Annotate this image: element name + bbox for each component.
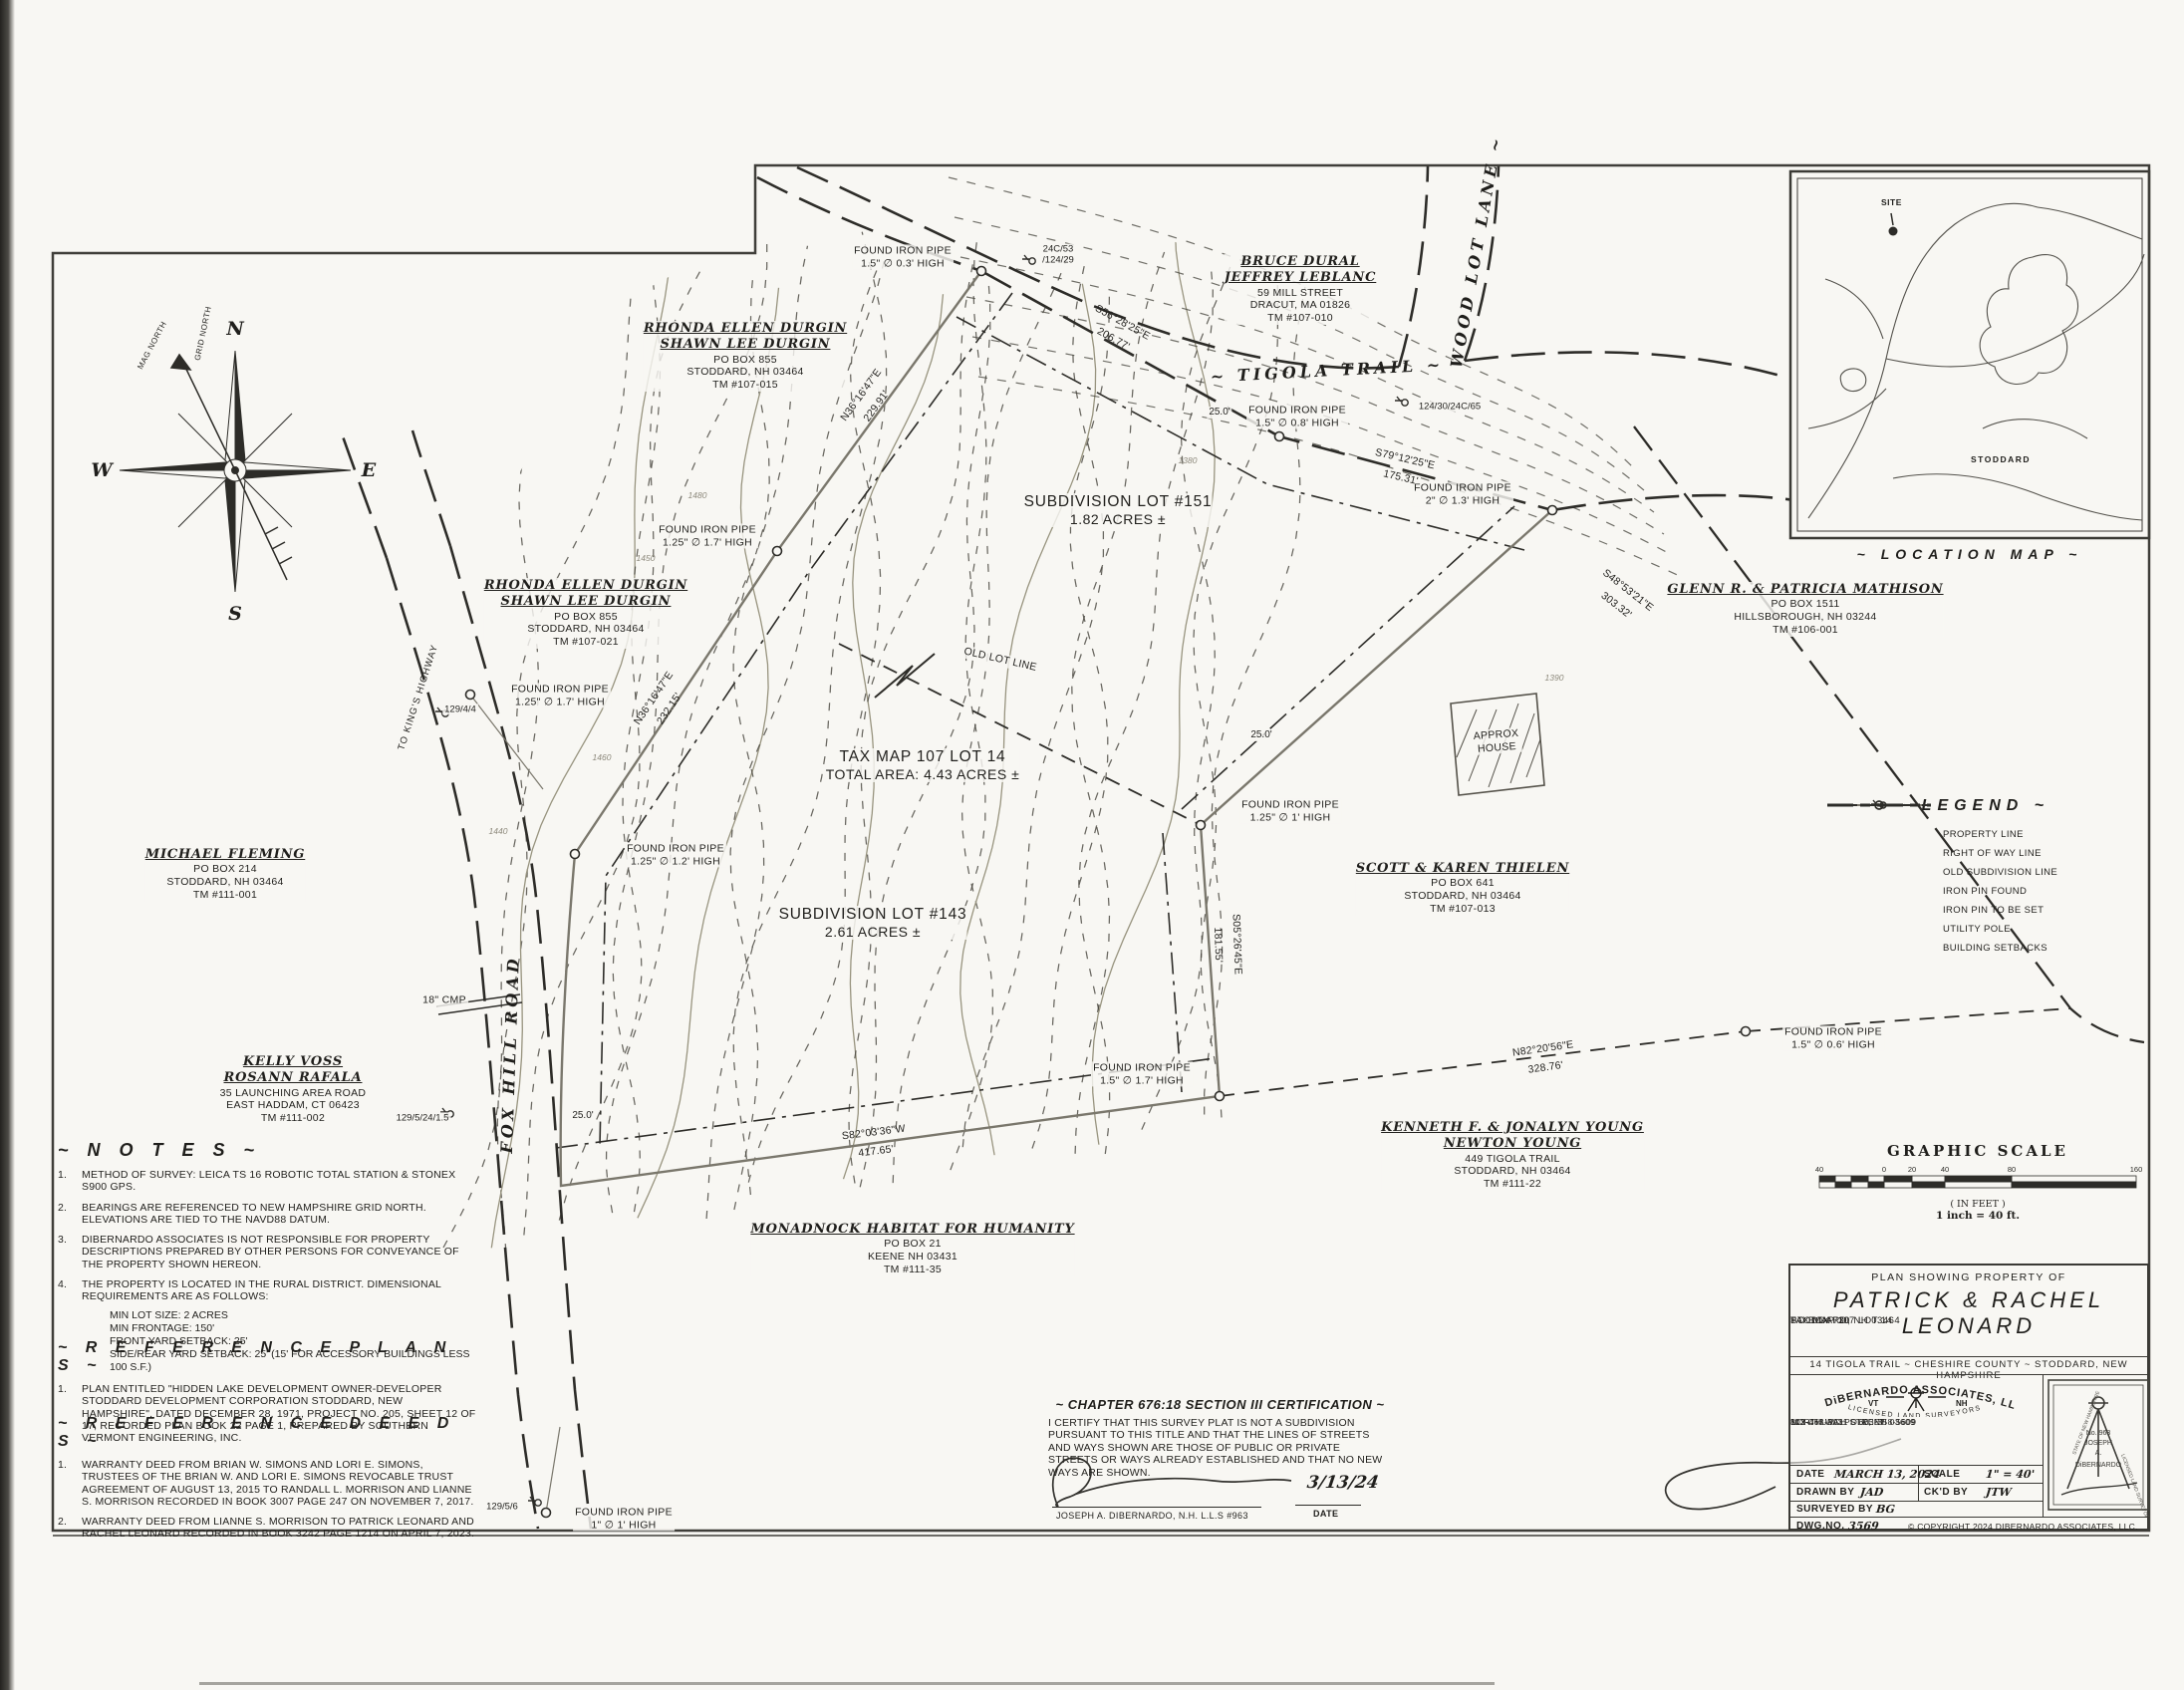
rect [1868,1176,1884,1182]
distance-text: 328.76' [1514,1057,1577,1078]
rect [2012,1182,2136,1188]
certification-block: ~ CHAPTER 676:18 SECTION III CERTIFICATI… [1048,1397,1392,1479]
owner-address-line: TAX MAP 107 LOT 14 [1790,1315,1892,1327]
abutter-address-line: 59 MILL STREET [1225,287,1377,300]
firm-logo: DiBERNARDO ASSOCIATES, LLC LICENSED LAND… [1790,1375,2043,1417]
abutter-address-line: TM #111-22 [1381,1178,1644,1191]
div [1790,1483,2043,1484]
bearing-distance-label: S48°53'21"E303.32' [1587,566,1658,631]
reference-deed-item-number: 2. [58,1516,73,1541]
contour-elevation-label: 1450 [637,553,656,563]
grid-north-label: GRID NORTH [193,305,213,361]
rect [1912,1176,1945,1182]
abutter-name: SHAWN LEE DURGIN [644,337,847,353]
reference-deed-item-text: WARRANTY DEED FROM LIANNE S. MORRISON TO… [82,1516,476,1541]
tigola-trail: ~ TIGOLA TRAIL ~ [1208,355,1446,387]
text: DiBERNARDO ASSOCIATES, LLC [1790,1375,2018,1412]
pole-id-1: 24C/53 /124/29 [1040,244,1076,267]
div [1790,1501,2043,1502]
abutter-name: ROSANN RAFALA [220,1070,367,1086]
abutter-address-line: TM #111-002 [220,1112,367,1125]
note-item-text: DIBERNARDO ASSOCIATES IS NOT RESPONSIBLE… [82,1234,476,1270]
abutter-block: RHONDA ELLEN DURGINSHAWN LEE DURGINPO BO… [484,578,687,649]
iron-pipe-label: FOUND IRON PIPE 1" ∅ 1' HIGH [573,1506,675,1531]
legend-items: PROPERTY LINERIGHT OF WAY LINEOLD SUBDIV… [1823,825,2122,958]
rect [1835,1182,1851,1188]
to-kings-highway: TO KING'S HIGHWAY [396,642,441,754]
abutter-name: SHAWN LEE DURGIN [484,594,687,610]
iron-pipe-label: FOUND IRON PIPE 1.5" ∅ 0.3' HIGH [852,244,954,269]
reference-deed-item: 2.WARRANTY DEED FROM LIANNE S. MORRISON … [58,1516,476,1541]
legend-item-label: PROPERTY LINE [1943,829,2024,840]
text: 160 [2130,1165,2142,1174]
scale-field-value: 1" = 40' [1985,1468,2035,1481]
pole-id-2: 124/30/24C/65 [1417,401,1483,412]
text: DiBERNARDO [2075,1462,2122,1469]
rect [1912,1182,1945,1188]
old-lot-line: OLD LOT LINE [960,645,1039,675]
abutter-address-line: TM #107-010 [1225,312,1377,325]
abutter-address-line: TM #111-001 [145,889,306,902]
rect [1884,1182,1912,1188]
graphic-scale-title: GRAPHIC SCALE [1808,1142,2147,1160]
div [1790,1517,2147,1518]
div [2043,1374,2044,1517]
note-item-number: 1. [58,1169,73,1194]
note-item: 2.BEARINGS ARE REFERENCED TO NEW HAMPSHI… [58,1202,476,1227]
abutter-name: MICHAEL FLEMING [145,847,306,863]
date-line [1295,1505,1361,1506]
copyright-text: © COPYRIGHT 2024 DIBERNARDO ASSOCIATES, … [1908,1522,2138,1532]
abutter-address-line: PO BOX 855 [484,611,687,624]
compass-east-label: E [362,459,376,481]
path [2061,1483,2137,1495]
checked-field-value: JTW [1985,1486,2012,1499]
legend-item-label: BUILDING SETBACKS [1943,943,2047,954]
rect [1835,1176,1851,1182]
pole-id-4: 129/5/24/1.5 [395,1112,451,1123]
abutter-address-line: TM #107-013 [1356,903,1569,916]
bearing-distance-label: S82°03'36"W417.65' [839,1122,910,1161]
text: 40 [1941,1165,1949,1174]
graphic-scale: GRAPHIC SCALE 400204080160 ( IN FEET ) 1… [1808,1142,2147,1222]
abutter-name: BRUCE DURAL [1225,254,1377,270]
rect [1945,1176,2012,1182]
checked-field-label: CK'D BY [1924,1487,1968,1498]
pole-id-5: 129/5/6 [484,1501,520,1512]
bearing-distance-label: S05°26'45"E181.55' [1211,912,1243,978]
dim-25-east: 25.0' [1248,729,1273,741]
abutter-address-line: KEENE NH 03431 [750,1251,1074,1264]
abutter-address-line: STODDARD, NH 03464 [484,623,687,636]
abutter-block: RHONDA ELLEN DURGINSHAWN LEE DURGINPO BO… [644,321,847,392]
abutter-address-line: 35 LAUNCHING AREA ROAD [220,1087,367,1100]
abutter-address-line: 449 TIGOLA TRAIL [1381,1153,1644,1166]
lot-area-label: SUBDIVISION LOT #1511.82 ACRES ± [1024,493,1213,527]
lot-acreage: 2.61 ACRES ± [779,924,967,940]
text: 0 [1882,1165,1886,1174]
drawn-field-label: DRAWN BY [1796,1487,1854,1498]
abutter-name: RHONDA ELLEN DURGIN [644,321,847,337]
rect [1851,1176,1868,1182]
lot-area-label: TAX MAP 107 LOT 14TOTAL AREA: 4.43 ACRES… [826,748,1020,782]
surveyed-field-value: BG [1875,1503,1895,1516]
site-label: SITE [1881,197,1902,207]
rect [1851,1182,1868,1188]
abutter-block: MONADNOCK HABITAT FOR HUMANITYPO BOX 21K… [750,1222,1074,1276]
abutter-name: GLENN R. & PATRICIA MATHISON [1667,582,1943,598]
rect [2012,1176,2136,1182]
abutter-name: KELLY VOSS [220,1054,367,1070]
div [1790,1465,2043,1466]
text: 20 [1908,1165,1916,1174]
certification-date-value: 3/13/24 [1306,1473,1380,1493]
abutter-name: MONADNOCK HABITAT FOR HUMANITY [750,1222,1074,1238]
dimensional-requirement-line: MIN LOT SIZE: 2 ACRES [110,1309,476,1322]
owner-name: PATRICK & RACHEL LEONARD [1790,1287,2147,1339]
reference-plans-title: ~ R E F E R E N C E P L A N S ~ [58,1339,476,1375]
location-map-title: ~ LOCATION MAP ~ [1857,546,2083,562]
distance-text: 181.55' [1211,915,1226,977]
title-block-heading: PLAN SHOWING PROPERTY OF [1790,1271,2147,1283]
approx-house: APPROX HOUSE [1471,727,1521,756]
bearing-distance-label: S56°28'25"E206.77' [1082,302,1154,361]
mag-north-label: MAG NORTH [136,320,168,371]
abutter-address-line: TM #111-35 [750,1264,1074,1276]
iron-pipe-label: FOUND IRON PIPE 1.5" ∅ 1.7' HIGH [1091,1061,1193,1086]
abutter-block: GLENN R. & PATRICIA MATHISONPO BOX 1511H… [1667,582,1943,637]
contour-elevation-label: 1480 [688,490,707,500]
legend-item-label: UTILITY POLE [1943,924,2011,935]
legend-item: RIGHT OF WAY LINE [1823,844,2122,863]
legend-item-label: OLD SUBDIVISION LINE [1943,867,2057,878]
note-item: 4.THE PROPERTY IS LOCATED IN THE RURAL D… [58,1278,476,1303]
scale-units: ( IN FEET ) [1808,1199,2147,1210]
contour-elevation-label: 1460 [593,752,612,762]
legend-item-label: IRON PIN FOUND [1943,886,2027,897]
bearing-distance-label: N82°20'56"E328.76' [1509,1038,1578,1078]
iron-pipe-label: FOUND IRON PIPE 1.25" ∅ 1' HIGH [1239,798,1341,823]
wood-lot-lane: WOOD LOT LANE ~ [1447,131,1507,371]
note-item-text: BEARINGS ARE REFERENCED TO NEW HAMPSHIRE… [82,1202,476,1227]
abutter-address-line: HILLSBOROUGH, NH 03244 [1667,611,1943,624]
abutter-name: JEFFREY LEBLANC [1225,270,1377,286]
legend-item-label: RIGHT OF WAY LINE [1943,848,2042,859]
dwg-field-value: 3569 [1847,1520,1879,1533]
legend-item: IRON PIN FOUND [1823,882,2122,901]
text: 40 [1815,1165,1823,1174]
abutter-address-line: EAST HADDAM, CT 06423 [220,1099,367,1112]
text: No. 963 [2086,1430,2111,1437]
rect [1868,1182,1884,1188]
abutter-address-line: TM #107-015 [644,379,847,392]
compass-south-label: S [228,603,242,625]
rect [1884,1176,1912,1182]
dim-25-top: 25.0' [1207,407,1231,419]
rect [1945,1182,2012,1188]
legend-item: PROPERTY LINE [1823,825,2122,844]
abutter-name: SCOTT & KAREN THIELEN [1356,861,1569,877]
note-item: 3.DIBERNARDO ASSOCIATES IS NOT RESPONSIB… [58,1234,476,1270]
abutter-address-line: STODDARD, NH 03464 [145,876,306,889]
text: A. [2095,1450,2102,1457]
drawn-field-value: JAD [1859,1486,1884,1499]
div [1790,1356,2147,1357]
legend-item: UTILITY POLE [1823,920,2122,939]
abutter-address-line: TM #107-021 [484,636,687,649]
iron-pipe-label: FOUND IRON PIPE 1.25" ∅ 1.7' HIGH [509,683,611,707]
contour-elevation-label: 1390 [1545,673,1564,683]
bearing-text: S05°26'45"E [1229,914,1244,976]
abutter-name: NEWTON YOUNG [1381,1136,1644,1152]
abutter-address-line: PO BOX 21 [750,1238,1074,1251]
date-label: DATE [1313,1509,1338,1519]
lot-acreage: TOTAL AREA: 4.43 ACRES ± [826,766,1020,782]
rect [1819,1182,1835,1188]
legend: ~ LEGEND ~ PROPERTY LINERIGHT OF WAY LIN… [1823,797,2122,958]
title-block: PLAN SHOWING PROPERTY OF PATRICK & RACHE… [1788,1264,2149,1531]
compass-north-label: N [226,318,243,340]
iron-pipe-label: FOUND IRON PIPE 1.25" ∅ 1.7' HIGH [657,523,758,548]
reference-deed-item: 1.WARRANTY DEED FROM BRIAN W. SIMONS AND… [58,1459,476,1508]
abutter-address-line: PO BOX 855 [644,354,847,367]
abutter-address-line: TM #106-001 [1667,624,1943,637]
cmp-culvert: 18" CMP [420,994,468,1007]
compass-west-label: W [91,459,112,481]
abutter-address-line: PO BOX 1511 [1667,598,1943,611]
contour-elevation-label: 1380 [1179,455,1198,465]
iron-pipe-label: FOUND IRON PIPE 1.5" ∅ 0.6' HIGH [1782,1025,1884,1050]
bearing-text: N82°20'56"E [1511,1038,1574,1059]
abutter-name: KENNETH F. & JONALYN YOUNG [1381,1120,1644,1136]
svg [1823,797,1935,813]
abutter-block: MICHAEL FLEMINGPO BOX 214STODDARD, NH 03… [145,847,306,902]
firm-address-line: 802-463-3031 ~ 603-358-5609 [1790,1417,1916,1428]
dimensional-requirement-line: MIN FRONTAGE: 150' [110,1322,476,1335]
town-label: STODDARD [1971,454,2031,464]
lot-title: SUBDIVISION LOT #143 [779,906,967,924]
rect [1819,1176,1835,1182]
legend-item: BUILDING SETBACKS [1823,939,2122,958]
iron-pipe-label: FOUND IRON PIPE 1.25" ∅ 1.2' HIGH [625,842,726,867]
scale-field-label: SCALE [1924,1469,1960,1480]
scale-bar-graphic: 400204080160 [1813,1162,2142,1196]
notes-title: ~ N O T E S ~ [58,1140,476,1161]
abutter-address-line: STODDARD, NH 03464 [1381,1165,1644,1178]
dim-25-west: 25.0' [570,1110,595,1122]
abutter-block: BRUCE DURALJEFFREY LEBLANC59 MILL STREET… [1225,254,1377,325]
reference-deeds-title: ~ R E F E R E N C E D E E D S ~ [58,1415,476,1451]
survey-sheet: N S E W MAG NORTH GRID NORTH SITE STODDA… [0,0,2184,1690]
abutter-address-line: STODDARD, NH 03464 [644,366,847,379]
surveyed-field-label: SURVEYED BY [1796,1504,1873,1515]
lot-title: TAX MAP 107 LOT 14 [826,748,1020,766]
state-vt: VT [1868,1399,1878,1408]
surveyor-seal: STATE OF NEW HAMPSHIRE LICENSED LAND SUR… [2046,1377,2151,1517]
contour-elevation-label: 1440 [489,826,508,836]
certification-body: I CERTIFY THAT THIS SURVEY PLAT IS NOT A… [1048,1417,1392,1479]
abutter-block: SCOTT & KAREN THIELENPO BOX 641STODDARD,… [1356,861,1569,916]
surveyor-name: JOSEPH A. DIBERNARDO, N.H. L.L.S #963 [1056,1511,1248,1521]
text: 80 [2008,1165,2016,1174]
note-item-number: 3. [58,1234,73,1270]
scale-bar: 400204080160 [1808,1162,2147,1196]
note-item-text: METHOD OF SURVEY: LEICA TS 16 ROBOTIC TO… [82,1169,476,1194]
abutter-address-line: PO BOX 641 [1356,877,1569,890]
textpath: DiBERNARDO ASSOCIATES, LLC [1790,1375,2018,1412]
note-item-number: 4. [58,1278,73,1303]
bearing-distance-label: S79°12'25"E175.31' [1368,445,1439,490]
abutter-address-line: STODDARD, NH 03464 [1356,890,1569,903]
abutter-name: RHONDA ELLEN DURGIN [484,578,687,594]
reference-deed-item-text: WARRANTY DEED FROM BRIAN W. SIMONS AND L… [82,1459,476,1508]
reference-deed-item-number: 1. [58,1459,73,1508]
legend-item-label: IRON PIN TO BE SET [1943,905,2044,916]
state-nh: NH [1956,1399,1968,1408]
date-field-label: DATE [1796,1469,1824,1480]
note-item-number: 2. [58,1202,73,1227]
abutter-block: KELLY VOSSROSANN RAFALA35 LAUNCHING AREA… [220,1054,367,1125]
distance-text: 417.65' [844,1141,909,1161]
dwg-field-label: DWG.NO. [1796,1521,1845,1532]
legend-item: OLD SUBDIVISION LINE [1823,863,2122,882]
note-item-text: THE PROPERTY IS LOCATED IN THE RURAL DIS… [82,1278,476,1303]
text: JOSEPH [2084,1440,2112,1447]
abutter-address-line: DRACUT, MA 01826 [1225,299,1377,312]
lot-title: SUBDIVISION LOT #151 [1024,493,1213,511]
certification-title: ~ CHAPTER 676:18 SECTION III CERTIFICATI… [1048,1397,1392,1412]
bearing-distance-label: N36°16'47"E232.15' [631,668,693,739]
reference-deeds-section: ~ R E F E R E N C E D E E D S ~ 1.WARRAN… [58,1415,476,1549]
note-item: 1.METHOD OF SURVEY: LEICA TS 16 ROBOTIC … [58,1169,476,1194]
fox-hill-road: FOX HILL ROAD [497,953,523,1156]
bearing-text: S82°03'36"W [841,1123,906,1143]
legend-item: IRON PIN TO BE SET [1823,901,2122,920]
abutter-address-line: PO BOX 214 [145,863,306,876]
iron-pipe-label: FOUND IRON PIPE 1.5" ∅ 0.8' HIGH [1246,404,1348,428]
pole-id-3: 129/4/4 [442,704,478,714]
surveyor-signature-line [1052,1507,1261,1508]
abutter-block: KENNETH F. & JONALYN YOUNGNEWTON YOUNG44… [1381,1120,1644,1191]
lot-area-label: SUBDIVISION LOT #1432.61 ACRES ± [779,906,967,940]
scale-ratio: 1 inch = 40 ft. [1808,1210,2147,1222]
reference-deed-items: 1.WARRANTY DEED FROM BRIAN W. SIMONS AND… [58,1459,476,1541]
lot-acreage: 1.82 ACRES ± [1024,511,1213,527]
